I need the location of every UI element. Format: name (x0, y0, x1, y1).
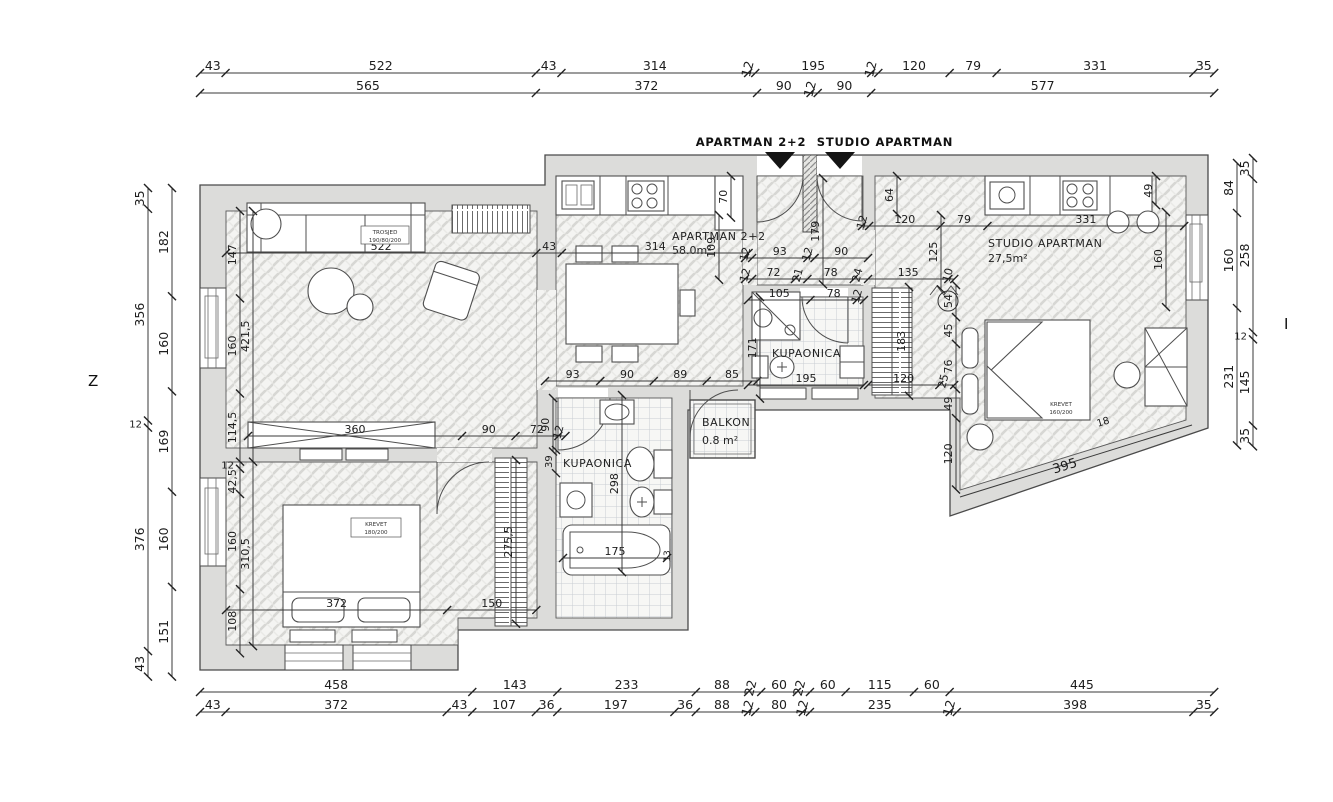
dim-label: 39 (544, 455, 555, 468)
dim-label: 331 (1083, 58, 1107, 73)
dim-label: 49 (1142, 184, 1155, 198)
pillow-icon (962, 374, 978, 414)
dim-chain-top-outer: 435224331412195121207933135 (196, 58, 1218, 78)
studio-table (1114, 362, 1140, 388)
dim-label: 360 (345, 423, 366, 436)
window-left-1 (200, 288, 226, 368)
entrance-label-apartman: APARTMAN 2+2 (696, 135, 807, 149)
dim-label: 195 (795, 372, 816, 385)
dim-label: 356 (132, 303, 147, 327)
dim-label: 90 (834, 245, 848, 258)
dim-label: 171 (746, 337, 759, 358)
dim-chain-top-inner: 565372901290577 (196, 78, 1218, 98)
dim-label: 233 (615, 677, 639, 692)
dim-label: 84 (1221, 180, 1236, 196)
dim-label: 235 (868, 697, 892, 712)
dim-label: 12 (940, 698, 959, 717)
dim-label: 88 (714, 677, 730, 692)
dim-label: 12 (1234, 331, 1247, 342)
dim-label: 577 (1031, 78, 1055, 93)
dim-label: 160 (156, 527, 171, 551)
compass-east-label: I (1284, 315, 1288, 333)
dim-label: 35 (1237, 160, 1252, 176)
sill (812, 388, 858, 399)
dim-label: 376 (132, 527, 147, 551)
entry-pillar (803, 155, 817, 232)
dim-label: 458 (324, 677, 348, 692)
opening-living-kitchen (537, 290, 556, 390)
side-table (347, 294, 373, 320)
sill (760, 388, 806, 399)
dim-label: 105 (769, 287, 790, 300)
dim-label: 115 (868, 677, 892, 692)
dim-label: 314 (643, 58, 667, 73)
dim-label: 182 (156, 230, 171, 254)
dim-label: 45 (942, 323, 955, 337)
window-bottom-1 (285, 645, 343, 670)
dim-label: 64 (883, 188, 896, 202)
dim-label: 85 (725, 368, 739, 381)
floor-plan: APARTMAN 2+2 STUDIO APARTMAN APARTMAN 2+… (0, 0, 1333, 802)
room-label-balkon: BALKON (702, 416, 750, 429)
entrance-label-studio: STUDIO APARTMAN (817, 135, 953, 149)
dim-chain-left-inner: 182160169160151 (156, 184, 176, 681)
dim-label: 43 (205, 697, 221, 712)
furniture-label-text: 180/200 (364, 530, 388, 536)
stove-icon (1063, 181, 1097, 210)
dim-label: 314 (645, 240, 666, 253)
dim-label: 372 (635, 78, 659, 93)
dim-label: 12 (738, 59, 757, 78)
stool-icon (1107, 211, 1129, 233)
dim-label: 197 (604, 697, 628, 712)
dim-label: 160 (226, 531, 239, 552)
dim-label: 125 (927, 242, 940, 263)
dim-label: 120 (902, 58, 926, 73)
dim-label: 93 (566, 368, 580, 381)
dim-label: 43 (205, 58, 221, 73)
dim-chain-right-outer: 352581214535 (1234, 154, 1257, 450)
window-left-2 (200, 478, 226, 566)
dim-label: 135 (898, 266, 919, 279)
radiator-shelf (452, 205, 530, 233)
room-area-balkon: 0.8 m² (702, 434, 738, 447)
dim-label: 60 (924, 677, 940, 692)
dim-label: 169 (156, 430, 171, 454)
dim-label: 445 (1070, 677, 1094, 692)
dim-label: 522 (369, 58, 393, 73)
dim-label: 35 (1196, 58, 1212, 73)
furniture-label-text: 190/80/200 (369, 238, 402, 244)
room-label-bathroom2: KUPAONICA (772, 347, 841, 360)
dim-label: 79 (957, 213, 971, 226)
dim-label: 143 (503, 677, 527, 692)
sink-icon (990, 182, 1024, 209)
dim-chain-right-inner: 84160231 (1221, 159, 1241, 449)
stove-icon (628, 181, 664, 211)
dim-chain-left-outer: 353561237643 (129, 184, 152, 681)
furniture-label-text: KREVET (365, 522, 387, 528)
dim-label: 12 (793, 698, 812, 717)
dim-label: 43 (541, 58, 557, 73)
pillow-icon (962, 328, 978, 368)
dim-label: 298 (608, 473, 621, 494)
dim-label: 54 (942, 294, 955, 308)
dim-label: 72 (767, 266, 781, 279)
dim-label: 36 (539, 697, 555, 712)
dim-label: 179 (809, 221, 822, 242)
dim-label: 120 (942, 443, 955, 464)
dim-label: 150 (481, 597, 502, 610)
dim-label: 151 (156, 620, 171, 644)
dim-label: 60 (771, 677, 787, 692)
dim-label: 76 (942, 359, 955, 373)
dim-chain-bottom-lower: 43372431073619736881280122351239835 (196, 697, 1218, 717)
dim-label: 109 (705, 237, 718, 258)
nightstand (967, 424, 993, 450)
window-bottom-2 (353, 645, 411, 670)
dim-label: 43 (542, 240, 556, 253)
dim-label: 372 (324, 697, 348, 712)
compass-west-label: Z (88, 372, 98, 390)
dim-label: 43 (452, 697, 468, 712)
stool-icon (1137, 211, 1159, 233)
room-label-studio: STUDIO APARTMAN (988, 237, 1102, 250)
dim-label: 183 (895, 331, 908, 352)
dim-label: 80 (771, 697, 787, 712)
dim-label: 90 (776, 78, 792, 93)
furniture-label-text: TROSJED (372, 230, 398, 236)
dim-label: 120 (893, 372, 914, 385)
room-area-studio: 27,5m² (988, 252, 1028, 265)
dim-label: 43 (132, 656, 147, 672)
dim-label: 12 (738, 698, 757, 717)
dim-label: 12 (800, 79, 819, 98)
dim-label: 398 (1063, 697, 1087, 712)
dim-label: 89 (673, 368, 687, 381)
dim-label: 60 (820, 677, 836, 692)
dim-label: 231 (1221, 365, 1236, 389)
dim-label: 565 (356, 78, 380, 93)
dim-label: 90 (620, 368, 634, 381)
dim-label: 421,5 (239, 321, 252, 353)
window-right (1186, 215, 1208, 300)
dim-label: 90 (539, 418, 552, 432)
wardrobe-188 (1145, 328, 1187, 406)
dim-label: 78 (827, 287, 841, 300)
dim-label: 90 (836, 78, 852, 93)
dim-label: 88 (714, 697, 730, 712)
dim-label: 310,5 (239, 538, 252, 570)
corner-sink-icon (754, 309, 772, 327)
dim-label: 35 (1237, 428, 1252, 444)
dim-label: 147 (226, 244, 239, 265)
dim-label: 49 (942, 397, 955, 411)
dim-label: 12 (861, 59, 880, 78)
dim-label: 12 (129, 420, 142, 431)
dim-label: 35 (132, 190, 147, 206)
furniture-label-text: 160/200 (1049, 410, 1073, 416)
dim-label: 258 (1237, 244, 1252, 268)
furniture-label: KREVET180/200 (351, 518, 401, 537)
dim-label-free: 13 (663, 550, 673, 561)
dim-chain-bottom-upper: 458143233882260226011560445 (196, 677, 1218, 697)
dim-label: 22 (741, 678, 760, 697)
dim-label: 114,5 (226, 412, 239, 444)
dim-label: 160 (1152, 249, 1165, 270)
washing-machine-icon (560, 483, 592, 517)
dim-label: 145 (1237, 370, 1252, 394)
dim-label: 160 (226, 335, 239, 356)
furniture-label-text: KREVET (1050, 402, 1072, 408)
dim-label: 90 (482, 423, 496, 436)
dim-label: 79 (965, 58, 981, 73)
dim-label: 160 (1221, 249, 1236, 273)
dim-label: 70 (717, 190, 730, 204)
dim-label: 160 (156, 332, 171, 356)
dim-label: 22 (790, 678, 809, 697)
dim-label: 93 (773, 245, 787, 258)
dim-label: 331 (1075, 213, 1096, 226)
dim-label: 195 (801, 58, 825, 73)
furniture-label: TROSJED190/80/200 (361, 226, 409, 244)
dim-label: 108 (226, 611, 239, 632)
floor-plan-canvas: APARTMAN 2+2 STUDIO APARTMAN APARTMAN 2+… (0, 0, 1333, 802)
dim-label: 107 (492, 697, 516, 712)
dim-label: 35 (1196, 697, 1212, 712)
dim-label: 372 (326, 597, 347, 610)
dim-label: 78 (824, 266, 838, 279)
furniture-label: KREVET160/200 (1049, 402, 1073, 416)
opening-bedroom-door (437, 448, 492, 462)
dim-label: 36 (677, 697, 693, 712)
dim-label: 275,5 (502, 526, 515, 558)
dim-label: 42,5 (226, 469, 239, 494)
